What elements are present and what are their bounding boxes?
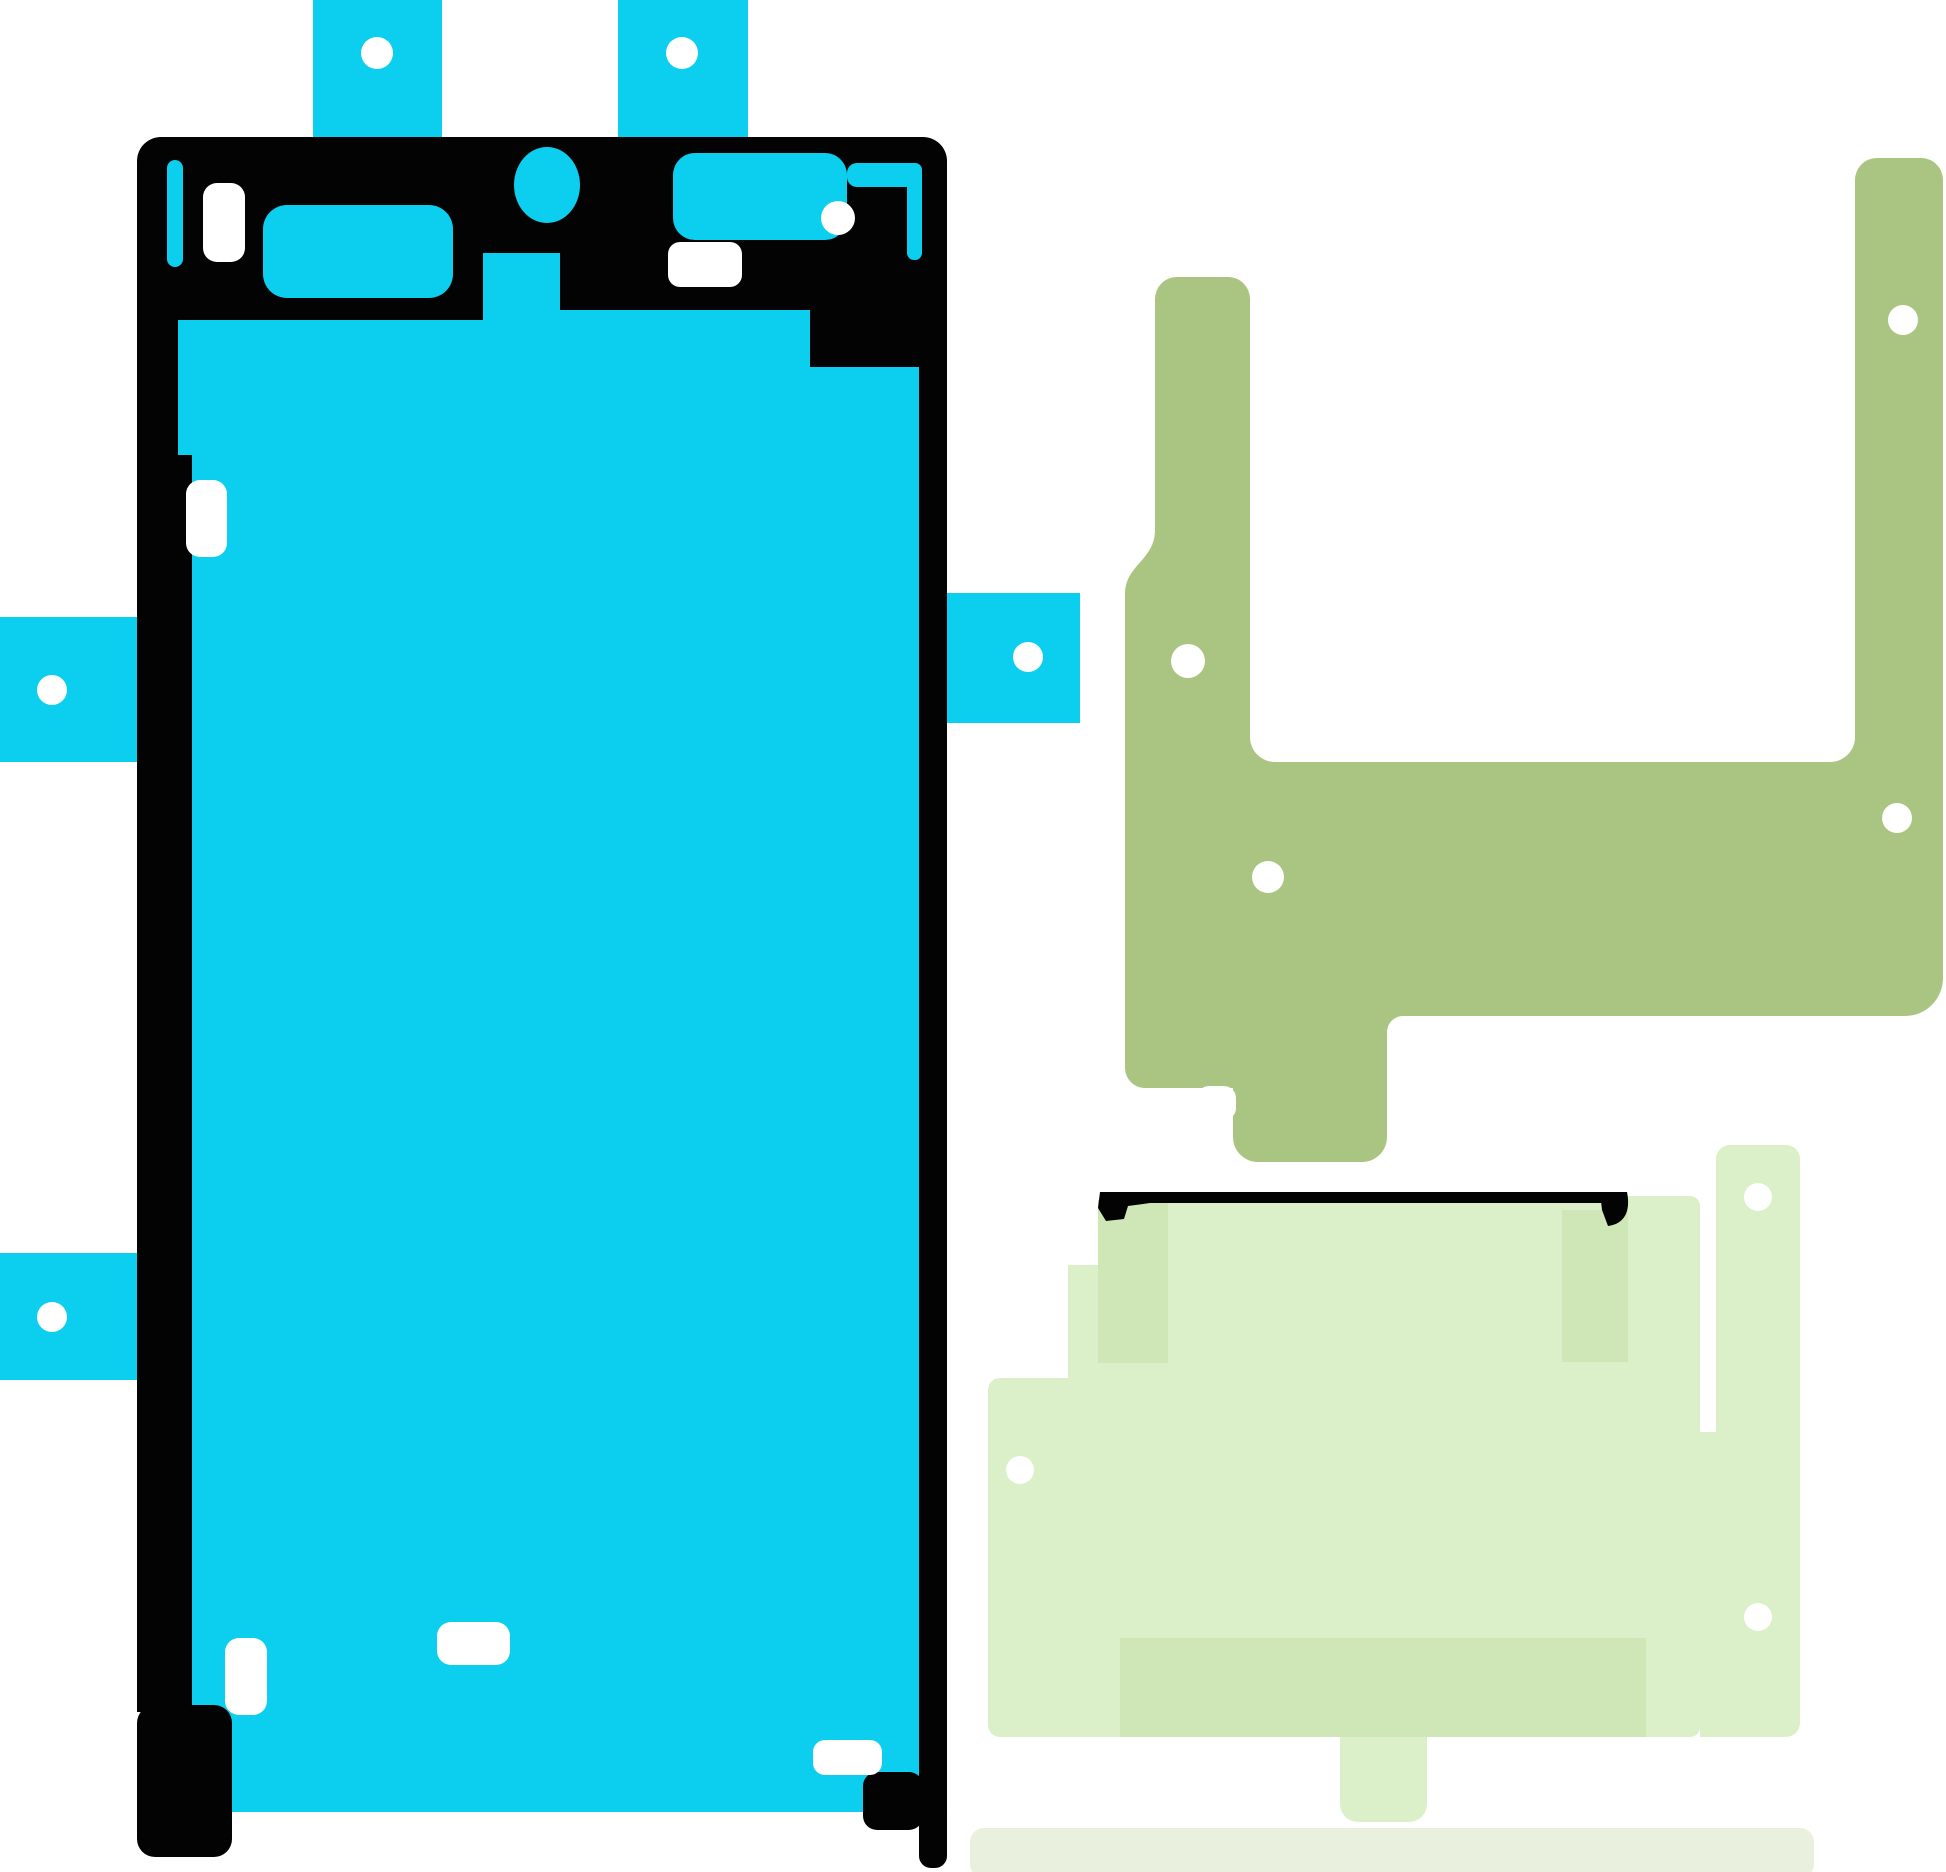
punch-hole	[1013, 642, 1043, 672]
front-camera-cutout	[514, 147, 580, 223]
sensor-slot-vertical-cutout	[907, 163, 922, 260]
punch-hole	[1171, 644, 1205, 678]
under-layer-band-bottom	[1120, 1638, 1646, 1737]
liner-tab-left-upper	[0, 617, 150, 762]
opening-left-edge	[186, 480, 227, 557]
black-edge-line	[1107, 1192, 1627, 1203]
bracket-adhesive-outline	[1125, 158, 1943, 1162]
battery-adhesive-piece	[970, 1145, 1814, 1872]
punch-hole	[361, 37, 393, 69]
outline-right-border	[919, 360, 947, 1830]
punch-hole	[1888, 305, 1918, 335]
opening-bottom-right	[813, 1740, 882, 1775]
punch-hole	[821, 201, 855, 235]
battery-sheet-right-tab	[1716, 1145, 1800, 1737]
punch-hole	[1744, 1603, 1772, 1631]
under-layer-band-left	[1098, 1200, 1168, 1363]
outline-bottom-right-foot	[863, 1772, 923, 1830]
punch-hole	[37, 675, 67, 705]
bracket-adhesive-piece	[1125, 158, 1943, 1162]
liner-strip	[970, 1828, 1814, 1872]
opening-top-right	[668, 242, 742, 287]
bracket-notch-cutout	[1197, 1086, 1236, 1120]
opening-bottom-center	[437, 1622, 510, 1665]
liner-tab-left-lower	[0, 1253, 150, 1380]
tab-flare-cutout	[263, 205, 453, 298]
display-sheet-body	[175, 250, 921, 1812]
earpiece-bay-cutout	[673, 153, 847, 240]
punch-hole	[1744, 1183, 1772, 1211]
outline-bottom-left-blob	[137, 1705, 232, 1857]
outline-left-border-inner	[178, 455, 192, 1705]
product-image-adhesive-kit	[0, 0, 1946, 1872]
battery-adhesive-liner-strip	[970, 1828, 1814, 1872]
sheet-interior	[175, 250, 921, 1812]
under-layer-band-middle	[1562, 1210, 1628, 1362]
band-punch-holes	[821, 201, 855, 235]
punch-hole	[1006, 1456, 1034, 1484]
liner-tab-right	[940, 593, 1080, 723]
outline-left-border	[137, 300, 178, 1712]
opening-bottom-left	[225, 1638, 267, 1715]
left-edge-slit-cutout	[167, 160, 183, 267]
punch-hole	[1882, 803, 1912, 833]
opening-top-left	[203, 183, 245, 262]
punch-hole	[1252, 861, 1284, 893]
outline-right-border-tip	[919, 1800, 947, 1868]
adhesive-kit-canvas	[0, 0, 1946, 1872]
punch-hole	[666, 37, 698, 69]
battery-sheet-step-left-2	[988, 1378, 1080, 1737]
display-adhesive-piece	[0, 0, 1080, 1868]
punch-hole	[37, 1302, 67, 1332]
